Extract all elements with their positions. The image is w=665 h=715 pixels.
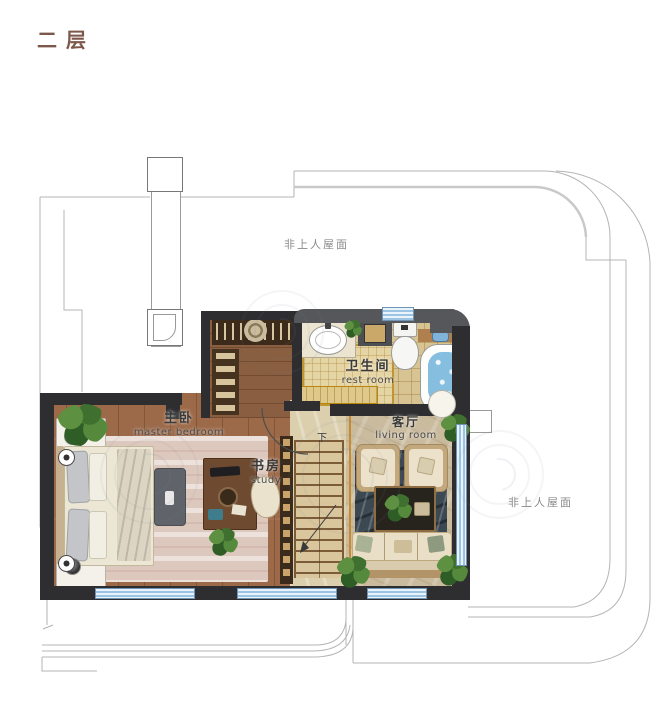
stairs-down-label: 下 — [317, 429, 327, 444]
shower-partition — [358, 320, 392, 346]
closet-round-item — [244, 319, 267, 342]
window-bottom-1 — [95, 588, 195, 599]
shower-niche — [364, 324, 386, 343]
bed-pillow-gray-2 — [66, 508, 91, 561]
sofa-pillow-sage — [355, 535, 374, 554]
stair-shelf — [280, 436, 293, 584]
bed-pillow-white-1 — [89, 453, 107, 501]
coffee-table-plant — [384, 494, 412, 522]
window-bottom-3 — [367, 588, 427, 599]
remote-control — [165, 491, 174, 505]
master-bedroom-label-en: master bedroom — [124, 427, 234, 439]
chimney-top-box — [147, 157, 183, 192]
living-room-label-zh: 客厅 — [366, 416, 446, 430]
armchair-left-pillow — [369, 457, 388, 476]
toilet-flush-button — [401, 325, 408, 330]
bed — [64, 446, 154, 566]
bathroom-label-zh: 卫生间 — [322, 360, 414, 375]
closet-shelves — [212, 349, 239, 415]
study-label: 书房 study — [234, 460, 298, 486]
column-outline — [469, 410, 492, 433]
window-bathroom-top — [382, 307, 414, 321]
wall-closet-top — [201, 311, 301, 320]
wall-left — [40, 393, 54, 600]
wall-closet-left — [201, 311, 210, 418]
sofa-pillow-tan — [394, 540, 412, 553]
master-bedroom-label-zh: 主卧 — [124, 412, 234, 427]
wall-sconce-top — [58, 449, 75, 466]
living-room-label-en: living room — [366, 430, 446, 442]
staircase — [294, 440, 344, 578]
chimney-flue-mark — [153, 314, 176, 341]
living-room-label: 客厅 living room — [366, 416, 446, 441]
coffee-table — [374, 486, 436, 532]
master-bedroom-label: 主卧 master bedroom — [124, 412, 234, 438]
wall-sconce-bottom — [58, 555, 75, 572]
wall-bath-bottom — [284, 401, 320, 411]
floor-plan-canvas: 二层 — [0, 0, 665, 715]
desk-laptop — [208, 509, 223, 520]
roof-label-right: 非上人屋面 — [508, 494, 573, 510]
wall-closet-bath — [292, 311, 302, 410]
wall-bedroom-top — [40, 393, 182, 405]
sink — [309, 325, 347, 355]
sofa-pillow-olive — [427, 535, 445, 553]
study-label-en: study — [234, 475, 298, 487]
armchair-right-pillow — [417, 457, 436, 476]
window-living-right — [456, 424, 467, 566]
coffee-table-tray — [414, 502, 430, 516]
floor-lamp — [428, 390, 456, 418]
floor-title: 二层 — [37, 24, 95, 53]
chimney-bottom-box — [147, 309, 183, 346]
bed-blanket — [117, 449, 151, 561]
bed-pillow-white-2 — [89, 511, 107, 559]
window-bottom-2 — [237, 588, 337, 599]
bathroom-label-en: rest room — [322, 375, 414, 387]
tv-bench — [154, 468, 186, 526]
bathroom-label: 卫生间 rest room — [322, 360, 414, 386]
desk-paper — [231, 504, 246, 516]
study-label-zh: 书房 — [234, 460, 298, 475]
roof-label-top: 非上人屋面 — [284, 236, 349, 252]
